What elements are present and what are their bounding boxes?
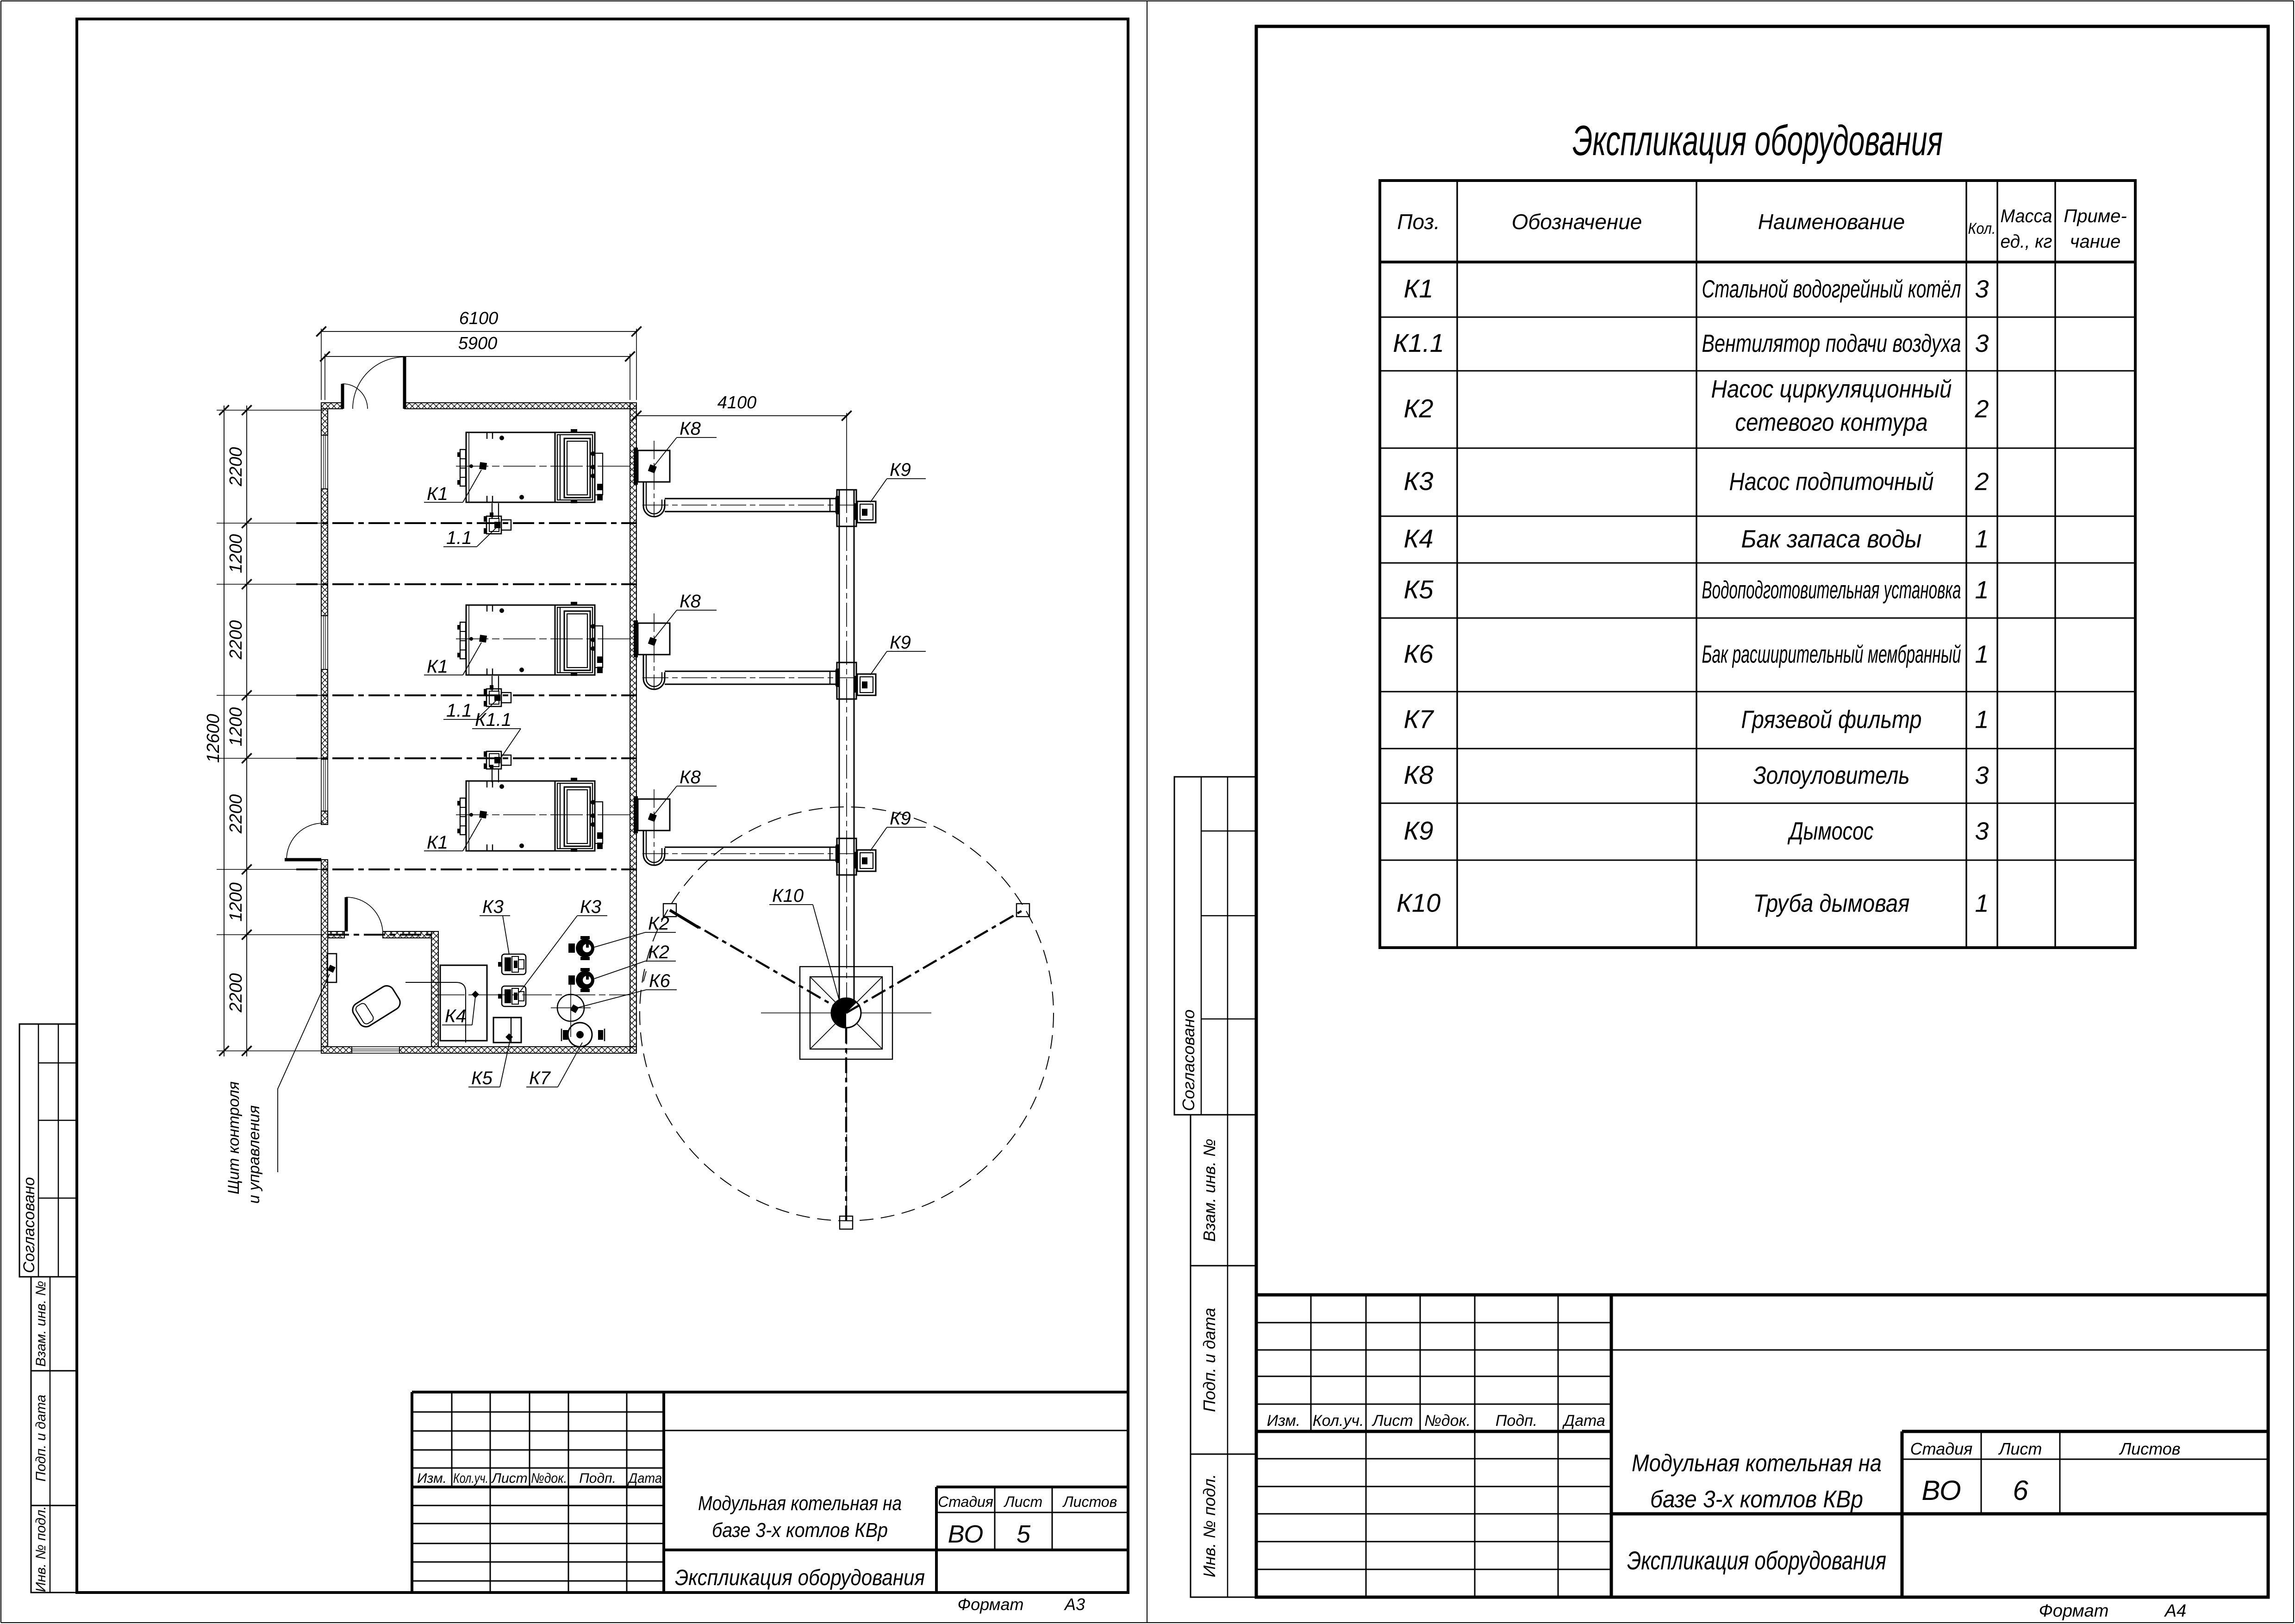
svg-text:К7: К7: [529, 1068, 551, 1088]
svg-text:Инв. № подл.: Инв. № подл.: [1200, 1474, 1219, 1577]
svg-text:2200: 2200: [226, 973, 246, 1013]
svg-text:Подп. и дата: Подп. и дата: [1200, 1308, 1219, 1412]
svg-text:3: 3: [1975, 330, 1989, 357]
svg-text:Стадия: Стадия: [1910, 1439, 1973, 1458]
svg-text:сетевого контура: сетевого контура: [1735, 409, 1928, 437]
svg-text:ВО: ВО: [1921, 1475, 1961, 1506]
svg-text:Золоуловитель: Золоуловитель: [1753, 762, 1910, 789]
svg-text:№док.: №док.: [1424, 1412, 1471, 1430]
svg-text:1: 1: [1975, 641, 1989, 668]
svg-text:Бак расширительный мембранный: Бак расширительный мембранный: [1702, 641, 1961, 668]
svg-text:К1: К1: [427, 656, 448, 677]
svg-text:2200: 2200: [226, 447, 246, 487]
svg-text:1.1: 1.1: [446, 528, 472, 548]
svg-text:базе 3-х котлов КВр: базе 3-х котлов КВр: [1650, 1486, 1863, 1513]
svg-text:К2: К2: [648, 913, 669, 934]
svg-text:К9: К9: [890, 808, 911, 829]
svg-text:К8: К8: [680, 767, 701, 787]
svg-text:К9: К9: [890, 632, 911, 653]
svg-text:1200: 1200: [226, 534, 246, 574]
svg-text:Экспликация оборудования: Экспликация оборудования: [675, 1566, 925, 1590]
svg-text:К1: К1: [427, 832, 448, 853]
svg-text:Лист: Лист: [491, 1471, 527, 1486]
svg-text:базе 3-х котлов КВр: базе 3-х котлов КВр: [712, 1519, 888, 1542]
svg-text:К7: К7: [1403, 705, 1434, 734]
svg-text:1: 1: [1975, 576, 1989, 604]
svg-text:Бак запаса воды: Бак запаса воды: [1741, 525, 1922, 553]
svg-text:Согласовано: Согласовано: [1179, 1009, 1198, 1111]
svg-text:К1.1: К1.1: [1393, 328, 1444, 357]
svg-text:Лист: Лист: [1004, 1493, 1042, 1510]
svg-text:и управления: и управления: [245, 1106, 263, 1204]
svg-text:Лист: Лист: [1372, 1412, 1413, 1430]
svg-text:3: 3: [1975, 275, 1989, 303]
svg-text:К6: К6: [1403, 639, 1434, 668]
svg-text:1200: 1200: [226, 882, 246, 922]
svg-text:Подп.: Подп.: [1496, 1412, 1538, 1430]
svg-text:К8: К8: [1403, 760, 1433, 789]
svg-text:2: 2: [1974, 395, 1989, 423]
svg-text:Взам. инв. №: Взам. инв. №: [33, 1281, 49, 1367]
svg-text:Изм.: Изм.: [417, 1471, 447, 1486]
svg-text:Наименование: Наименование: [1758, 210, 1905, 234]
svg-text:К3: К3: [482, 897, 504, 917]
svg-text:Формат: Формат: [2039, 1601, 2109, 1621]
svg-text:чание: чание: [2070, 231, 2120, 252]
svg-text:К4: К4: [445, 1006, 466, 1026]
svg-text:5900: 5900: [458, 334, 498, 353]
svg-text:К2: К2: [648, 942, 669, 962]
svg-text:Модульная котельная на: Модульная котельная на: [1632, 1450, 1882, 1477]
svg-text:К5: К5: [471, 1068, 493, 1088]
svg-text:К3: К3: [580, 897, 601, 917]
svg-text:Стальной водогрейный котёл: Стальной водогрейный котёл: [1702, 275, 1961, 303]
svg-text:Труба дымовая: Труба дымовая: [1753, 890, 1910, 918]
svg-text:3: 3: [1975, 818, 1989, 845]
svg-text:Лист: Лист: [1998, 1439, 2042, 1458]
svg-text:Водоподготовительная установка: Водоподготовительная установка: [1702, 576, 1961, 604]
svg-text:Кол.уч.: Кол.уч.: [1313, 1412, 1364, 1430]
svg-text:Согласовано: Согласовано: [20, 1177, 38, 1273]
svg-text:Экспликация оборудования: Экспликация оборудования: [1627, 1546, 1886, 1575]
svg-text:12600: 12600: [204, 714, 223, 763]
svg-text:К8: К8: [680, 418, 701, 439]
svg-text:Стадия: Стадия: [938, 1493, 993, 1510]
svg-text:Взам. инв. №: Взам. инв. №: [1200, 1139, 1219, 1242]
svg-text:А3: А3: [1064, 1595, 1085, 1614]
svg-text:2: 2: [1974, 468, 1989, 496]
svg-text:1200: 1200: [226, 707, 246, 747]
svg-text:А4: А4: [2164, 1601, 2186, 1621]
svg-text:1: 1: [1975, 525, 1989, 553]
svg-text:1.1: 1.1: [446, 700, 472, 721]
svg-text:3: 3: [1975, 762, 1989, 789]
svg-text:Листов: Листов: [1062, 1493, 1117, 1510]
svg-text:Экспликация оборудования: Экспликация оборудования: [1572, 117, 1943, 164]
svg-text:К4: К4: [1403, 524, 1433, 553]
svg-text:Приме-: Приме-: [2064, 206, 2127, 226]
svg-text:Модульная котельная на: Модульная котельная на: [698, 1492, 902, 1515]
svg-text:Щит контроля: Щит контроля: [225, 1081, 243, 1194]
svg-text:1: 1: [1975, 706, 1989, 734]
svg-text:Насос подпиточный: Насос подпиточный: [1729, 468, 1934, 496]
svg-text:№док.: №док.: [531, 1471, 567, 1486]
svg-text:Дата: Дата: [627, 1471, 662, 1486]
svg-text:ед., кг: ед., кг: [2001, 231, 2052, 252]
svg-text:К8: К8: [680, 591, 701, 612]
svg-text:Дымосос: Дымосос: [1788, 818, 1874, 845]
svg-text:Листов: Листов: [2119, 1439, 2180, 1458]
svg-text:4100: 4100: [717, 393, 757, 412]
svg-text:К10: К10: [772, 886, 804, 906]
svg-text:1: 1: [1975, 890, 1989, 918]
svg-text:К1: К1: [1403, 274, 1433, 303]
svg-text:К9: К9: [890, 460, 911, 480]
svg-text:Кол.: Кол.: [1968, 220, 1996, 237]
svg-text:К9: К9: [1403, 816, 1433, 845]
svg-text:Дата: Дата: [1562, 1412, 1605, 1430]
svg-text:Формат: Формат: [958, 1595, 1024, 1614]
svg-text:Обозначение: Обозначение: [1512, 210, 1642, 234]
svg-text:Кол.уч.: Кол.уч.: [453, 1471, 488, 1486]
svg-text:К1: К1: [427, 484, 448, 504]
svg-text:Поз.: Поз.: [1397, 210, 1440, 234]
svg-text:Насос циркуляционный: Насос циркуляционный: [1711, 375, 1952, 403]
svg-text:Грязевой фильтр: Грязевой фильтр: [1741, 706, 1922, 734]
svg-text:5: 5: [1017, 1520, 1031, 1548]
svg-text:Подп. и дата: Подп. и дата: [33, 1395, 49, 1482]
svg-text:К5: К5: [1403, 575, 1434, 604]
svg-text:Подп.: Подп.: [579, 1471, 616, 1486]
svg-text:ВО: ВО: [948, 1520, 984, 1548]
svg-text:К3: К3: [1403, 467, 1433, 496]
svg-text:Масса: Масса: [2001, 206, 2052, 226]
svg-text:Инв. № подл.: Инв. № подл.: [33, 1506, 49, 1592]
svg-text:6100: 6100: [459, 309, 499, 328]
svg-text:Вентилятор подачи воздуха: Вентилятор подачи воздуха: [1702, 330, 1961, 357]
svg-text:2200: 2200: [226, 620, 246, 660]
svg-text:2200: 2200: [226, 794, 246, 834]
svg-text:К10: К10: [1397, 888, 1441, 918]
svg-text:Изм.: Изм.: [1267, 1412, 1301, 1430]
svg-text:К2: К2: [1403, 394, 1433, 423]
svg-text:6: 6: [2013, 1475, 2028, 1506]
svg-text:К6: К6: [649, 971, 671, 991]
svg-text:К1.1: К1.1: [475, 710, 511, 730]
